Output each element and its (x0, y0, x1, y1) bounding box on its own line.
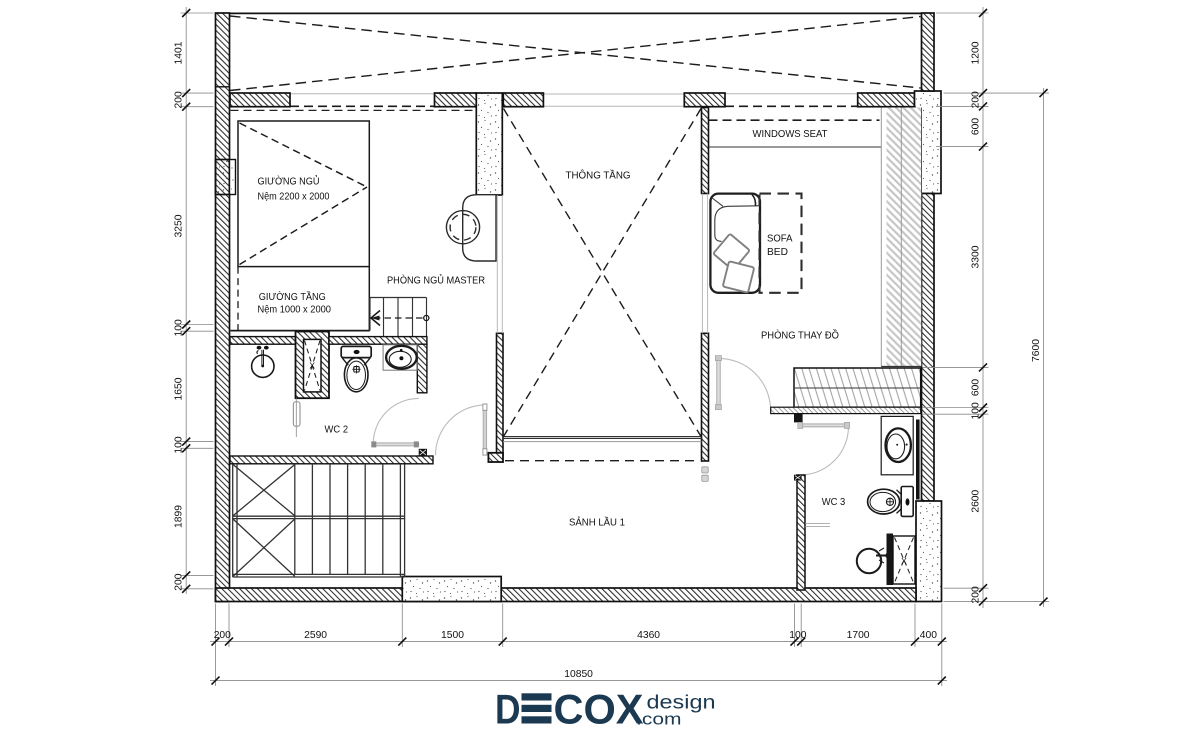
svg-text:PHÒNG NGỦ MASTER: PHÒNG NGỦ MASTER (387, 273, 485, 286)
svg-text:COX: COX (554, 685, 644, 732)
svg-text:600: 600 (971, 379, 982, 396)
svg-text:100: 100 (789, 630, 806, 641)
svg-text:200: 200 (174, 573, 185, 590)
svg-text:X: X (309, 361, 315, 371)
svg-text:7600: 7600 (1031, 339, 1042, 362)
svg-text:SOFA: SOFA (767, 234, 793, 245)
svg-text:GIƯỜNG NGỦ: GIƯỜNG NGỦ (258, 175, 320, 188)
svg-text:100: 100 (971, 402, 982, 419)
svg-text:PHÒNG THAY ĐỒ: PHÒNG THAY ĐỒ (761, 329, 839, 342)
svg-text:GIƯỜNG TẦNG: GIƯỜNG TẦNG (259, 290, 326, 303)
svg-text:WC 2: WC 2 (325, 425, 349, 436)
svg-text:600: 600 (971, 118, 982, 135)
svg-text:200: 200 (214, 630, 231, 641)
svg-text:1899: 1899 (174, 505, 185, 528)
svg-text:THÔNG TẦNG: THÔNG TẦNG (566, 169, 631, 182)
svg-text:X: X (901, 556, 907, 566)
svg-text:1650: 1650 (174, 377, 185, 400)
svg-text:BED: BED (767, 247, 788, 258)
svg-text:Nệm 2200 x 2000: Nệm 2200 x 2000 (258, 192, 330, 203)
svg-text:1401: 1401 (174, 41, 185, 64)
svg-text:3250: 3250 (174, 214, 185, 237)
svg-text:200: 200 (971, 586, 982, 603)
svg-text:1500: 1500 (441, 630, 464, 641)
svg-text:1700: 1700 (847, 630, 870, 641)
svg-text:200: 200 (174, 91, 185, 108)
svg-text:400: 400 (920, 630, 937, 641)
svg-text:WINDOWS SEAT: WINDOWS SEAT (753, 129, 829, 140)
svg-text:Nệm 1000 x 2000: Nệm 1000 x 2000 (258, 305, 332, 316)
svg-text:SẢNH LẦU 1: SẢNH LẦU 1 (569, 516, 625, 529)
svg-text:200: 200 (971, 91, 982, 108)
svg-text:4360: 4360 (637, 630, 660, 641)
svg-text:3300: 3300 (971, 245, 982, 268)
svg-text:2600: 2600 (971, 489, 982, 512)
svg-text:.com: .com (636, 710, 682, 728)
svg-text:100: 100 (174, 436, 185, 453)
svg-text:WC 3: WC 3 (822, 497, 846, 508)
svg-text:1200: 1200 (971, 41, 982, 64)
svg-text:10850: 10850 (564, 669, 593, 680)
svg-text:100: 100 (174, 319, 185, 336)
svg-text:2590: 2590 (304, 630, 327, 641)
svg-text:D: D (495, 685, 521, 732)
